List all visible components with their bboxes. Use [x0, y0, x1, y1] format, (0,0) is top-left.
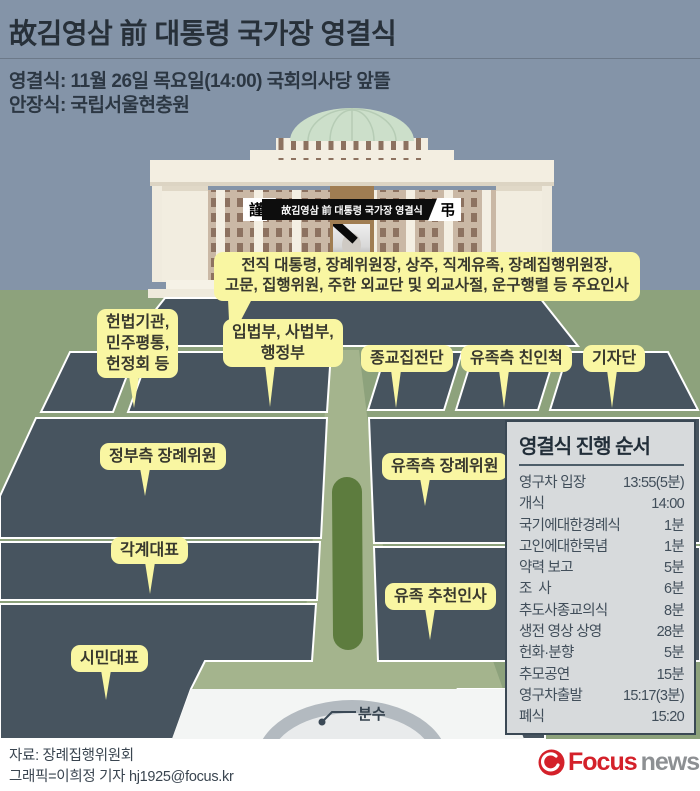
callout-text: 헌법기관, 민주평통, 헌정회 등: [106, 314, 169, 373]
burial-info: 안장식: 국립서울현충원: [9, 90, 189, 117]
callout-vip-attendees: 전직 대통령, 장례위원장, 상주, 직계유족, 장례집행위원장, 고문, 집행…: [214, 252, 640, 301]
schedule-item-value: 6분: [664, 579, 684, 600]
callout-family-relatives: 유족측 친인척: [461, 345, 572, 372]
callout-tail: [607, 370, 617, 408]
schedule-item-label: 영구차출발: [519, 686, 582, 707]
callout-text: 정부측 장례위원: [109, 448, 217, 465]
callout-text: 입법부, 사법부, 행정부: [232, 324, 334, 362]
callout-press: 기자단: [583, 345, 645, 372]
left-pylon: [162, 186, 208, 282]
schedule-row: 고인에대한묵념1분: [519, 537, 684, 558]
source-credit: 자료: 장례집행위원회: [9, 744, 134, 765]
callout-constitutional-bodies: 헌법기관, 민주평통, 헌정회 등: [97, 309, 178, 378]
schedule-item-label: 영구차 입장: [519, 473, 586, 494]
callout-tail: [145, 562, 155, 594]
callout-text: 종교집전단: [370, 350, 444, 367]
schedule-item-label: 폐식: [519, 707, 544, 728]
schedule-item-label: 조 사: [519, 579, 551, 600]
schedule-row: 추모공연15분: [519, 665, 684, 686]
page-title: 故김영삼 前 대통령 국가장 영결식: [9, 12, 396, 52]
schedule-item-value: 15:17(3분): [623, 686, 684, 707]
callout-tail: [420, 478, 430, 506]
schedule-row: 영구차출발15:17(3분): [519, 686, 684, 707]
banner-text: 故김영삼 前 대통령 국가장 영결식: [262, 199, 442, 220]
callout-tail: [425, 608, 435, 640]
callout-text: 유족측 친인척: [470, 350, 563, 367]
schedule-row: 추도사종교의식8분: [519, 601, 684, 622]
road-median: [347, 492, 348, 635]
graphic-credit: 그래픽=이희정 기자 hj1925@focus.kr: [9, 765, 233, 786]
schedule-title: 영결식 진행 순서: [519, 430, 684, 459]
callout-citizen-representatives: 시민대표: [71, 645, 148, 672]
fountain-leader-dot: [319, 719, 326, 726]
schedule-row: 헌화·분향5분: [519, 643, 684, 664]
callout-government-branches: 입법부, 사법부, 행정부: [223, 319, 343, 367]
callout-gov-funeral-committee: 정부측 장례위원: [100, 443, 226, 470]
schedule-row: 국기에대한경례식1분: [519, 516, 684, 537]
schedule-item-value: 1분: [664, 516, 684, 537]
news-logo-text: news: [641, 748, 700, 777]
schedule-row: 조 사6분: [519, 579, 684, 600]
focus-logo-mark-icon: [538, 749, 565, 776]
callout-family-nominees: 유족 추천인사: [385, 583, 496, 610]
schedule-row: 영구차 입장13:55(5분): [519, 473, 684, 494]
callout-tail: [499, 370, 509, 408]
callout-text: 시민대표: [80, 650, 139, 667]
schedule-item-value: 13:55(5분): [623, 473, 684, 494]
callout-religious-officiants: 종교집전단: [361, 345, 453, 372]
schedule-item-label: 국기에대한경례식: [519, 516, 620, 537]
schedule-item-label: 생전 영상 상영: [519, 622, 602, 643]
schedule-title-rule: [519, 464, 684, 466]
schedule-item-value: 1분: [664, 537, 684, 558]
callout-tail: [391, 370, 401, 408]
focus-logo-text: Focus: [568, 748, 637, 777]
callout-text: 기자단: [592, 350, 636, 367]
callout-tail: [101, 670, 111, 700]
mourning-banner: 謹 故김영삼 前 대통령 국가장 영결식 弔: [243, 198, 461, 221]
callout-sector-representatives: 각계대표: [111, 537, 188, 564]
callout-text: 유족측 장례위원: [391, 458, 499, 475]
schedule-row: 폐식15:20: [519, 707, 684, 728]
fountain-label: 분수: [358, 703, 386, 724]
seating-block-gov-committee: [0, 418, 327, 538]
seating-block-stage: [127, 298, 578, 346]
callout-tail: [140, 468, 150, 496]
callout-text: 유족 추천인사: [394, 588, 487, 605]
focus-news-logo: Focus news: [538, 748, 699, 777]
ceremony-info: 영결식: 11월 26일 목요일(14:00) 국회의사당 앞뜰: [9, 66, 390, 93]
callout-text: 전직 대통령, 장례위원장, 상주, 직계유족, 장례집행위원장, 고문, 집행…: [225, 257, 629, 294]
schedule-item-value: 15:20: [651, 707, 684, 728]
callout-tail: [129, 376, 139, 408]
schedule-item-label: 추모공연: [519, 665, 570, 686]
header-divider: [0, 58, 700, 59]
schedule-item-value: 28분: [657, 622, 684, 643]
callout-tail: [265, 365, 275, 407]
schedule-row: 개식14:00: [519, 494, 684, 515]
schedule-item-label: 추도사종교의식: [519, 601, 607, 622]
schedule-item-label: 개식: [519, 494, 544, 515]
schedule-row: 생전 영상 상영28분: [519, 622, 684, 643]
callout-text: 각계대표: [120, 542, 179, 559]
schedule-item-label: 헌화·분향: [519, 643, 574, 664]
schedule-item-label: 약력 보고: [519, 558, 573, 579]
cross-road: [193, 661, 503, 689]
schedule-item-value: 5분: [664, 643, 684, 664]
schedule-panel: 영결식 진행 순서 영구차 입장13:55(5분) 개식14:00 국기에대한경…: [505, 420, 696, 735]
schedule-item-label: 고인에대한묵념: [519, 537, 607, 558]
schedule-item-value: 8분: [664, 601, 684, 622]
callout-family-funeral-committee: 유족측 장례위원: [382, 453, 508, 480]
schedule-row: 약력 보고5분: [519, 558, 684, 579]
schedule-item-value: 5분: [664, 558, 684, 579]
roof-slab: [150, 160, 554, 182]
schedule-item-value: 14:00: [651, 494, 684, 515]
infographic-root: 故김영삼 前 대통령 국가장 영결식 영결식: 11월 26일 목요일(14:0…: [0, 0, 700, 791]
schedule-item-value: 15분: [657, 665, 684, 686]
